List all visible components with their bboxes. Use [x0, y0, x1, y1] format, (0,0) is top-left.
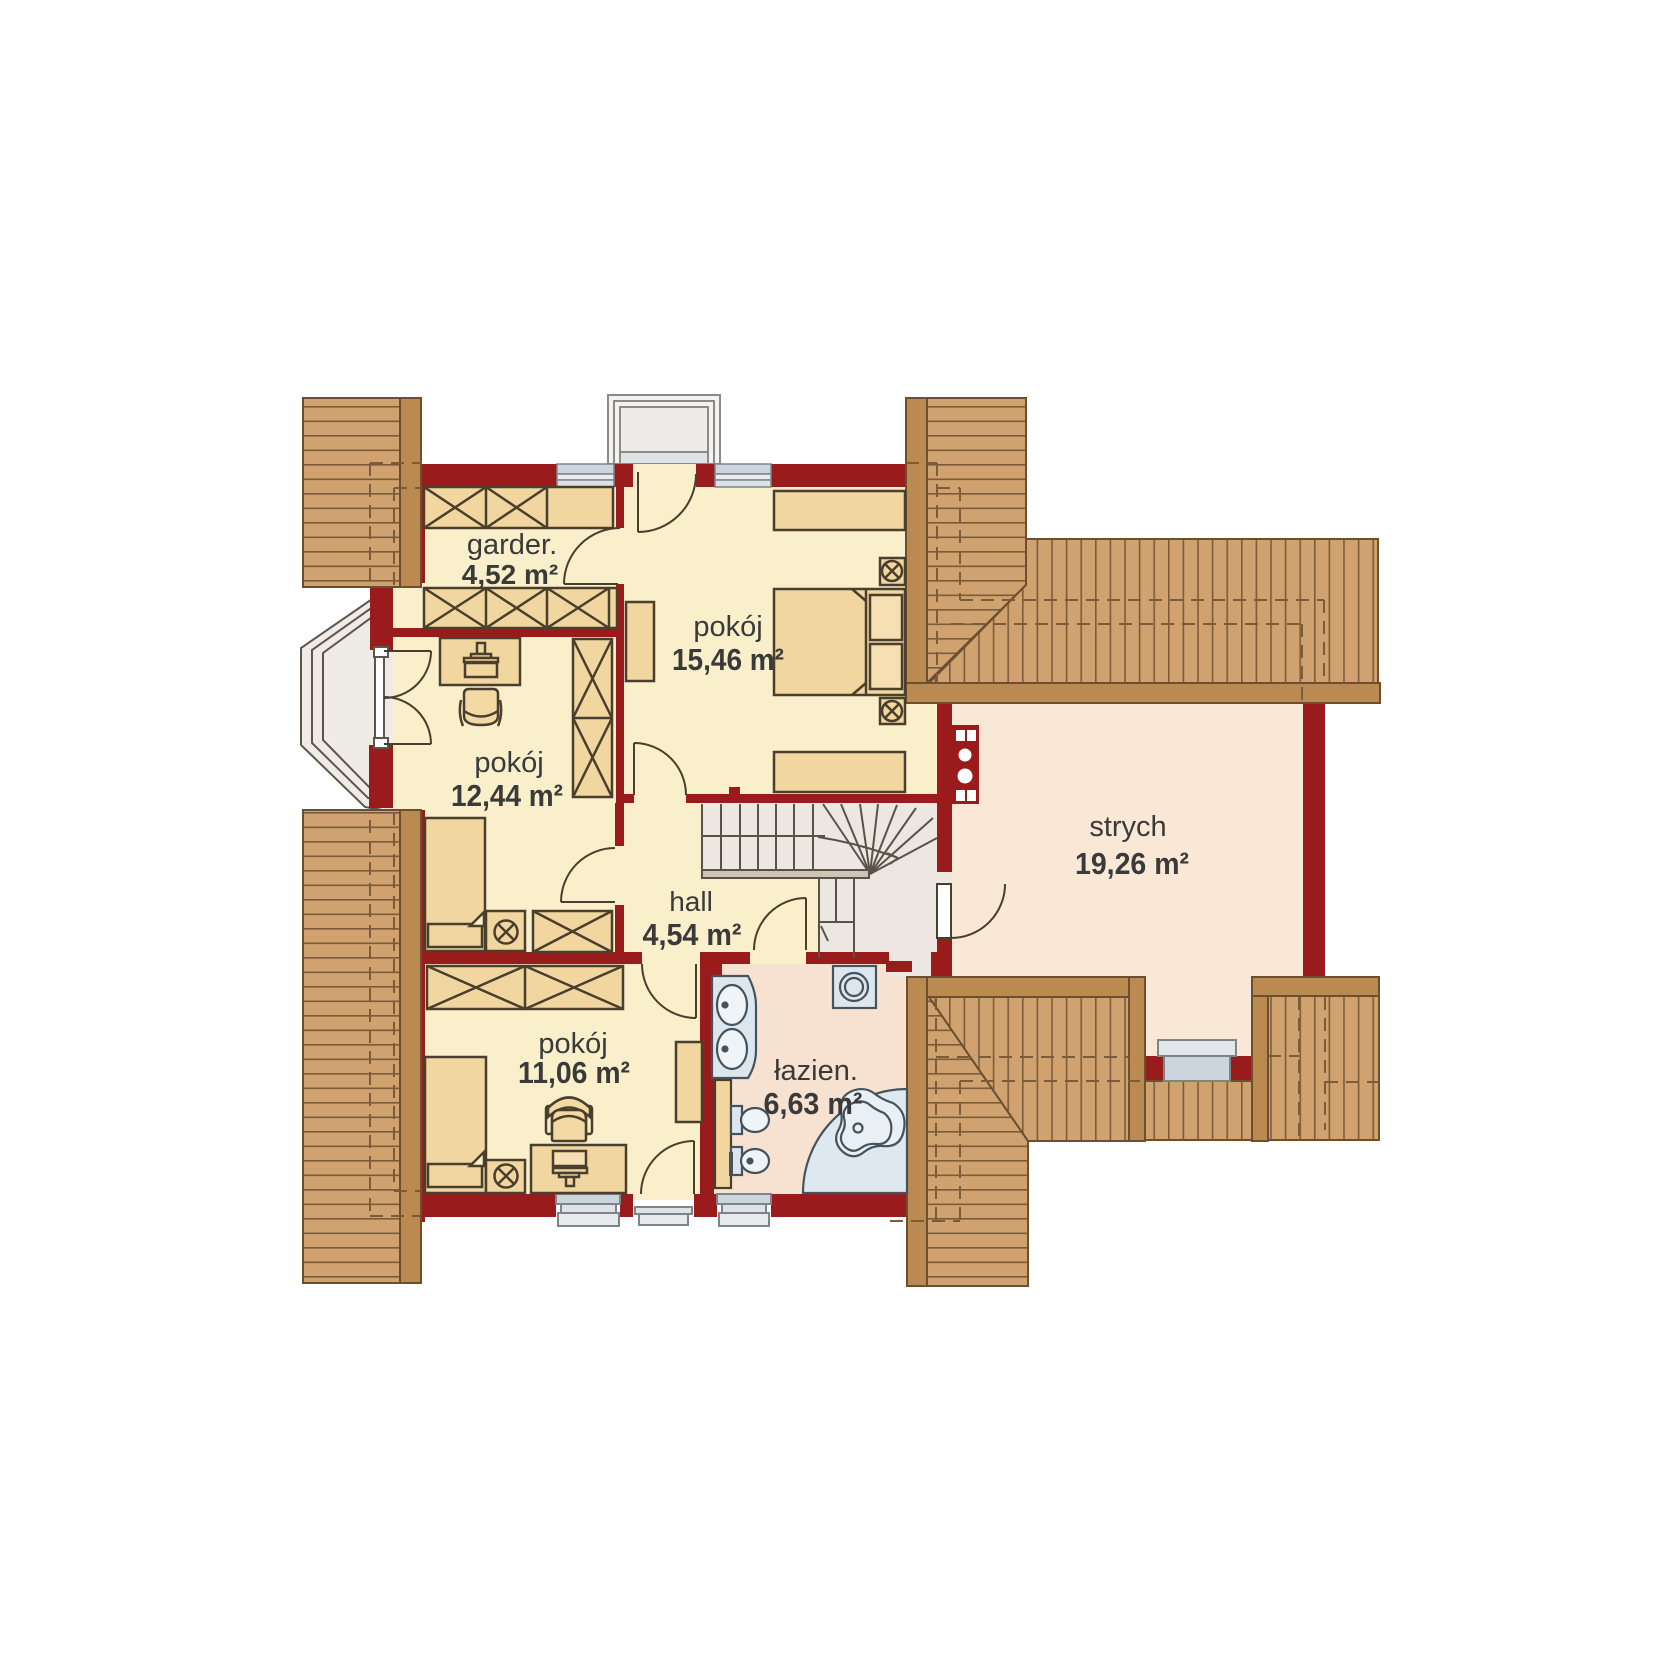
- svg-text:garder.: garder.: [467, 529, 557, 561]
- svg-text:pokój: pokój: [474, 747, 543, 779]
- svg-text:strych: strych: [1089, 811, 1166, 843]
- svg-text:hall: hall: [669, 886, 713, 917]
- svg-text:15,46 m²: 15,46 m²: [672, 642, 784, 677]
- svg-text:6,63 m²: 6,63 m²: [764, 1086, 863, 1121]
- svg-text:łazien.: łazien.: [774, 1055, 858, 1087]
- svg-text:11,06 m²: 11,06 m²: [518, 1055, 630, 1090]
- svg-text:pokój: pokój: [693, 611, 762, 643]
- svg-text:19,26 m²: 19,26 m²: [1075, 846, 1189, 881]
- svg-text:4,52 m²: 4,52 m²: [462, 559, 559, 590]
- svg-text:4,54 m²: 4,54 m²: [643, 917, 742, 952]
- svg-text:12,44 m²: 12,44 m²: [451, 778, 563, 813]
